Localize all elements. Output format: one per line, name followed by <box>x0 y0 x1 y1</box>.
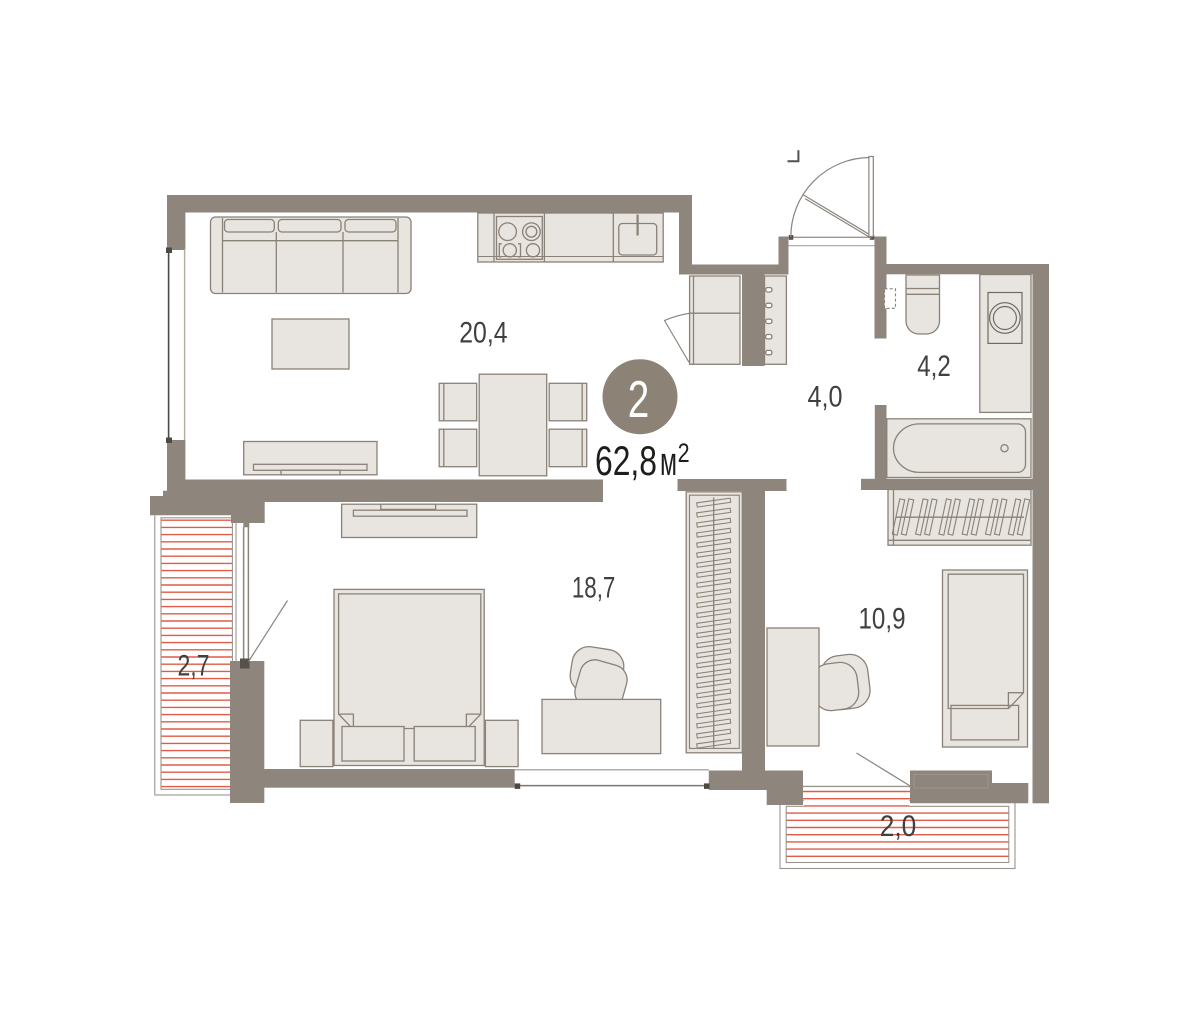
svg-text:2: 2 <box>628 370 650 428</box>
svg-text:20,4: 20,4 <box>459 317 507 350</box>
svg-text:2,7: 2,7 <box>178 650 210 683</box>
svg-text:4,2: 4,2 <box>917 350 951 383</box>
svg-text:м: м <box>660 440 677 484</box>
svg-text:62,8: 62,8 <box>595 437 657 484</box>
svg-text:10,9: 10,9 <box>859 603 906 636</box>
svg-text:2: 2 <box>678 438 690 468</box>
svg-text:4,0: 4,0 <box>808 380 843 413</box>
svg-text:18,7: 18,7 <box>572 571 616 604</box>
svg-text:2,0: 2,0 <box>880 810 917 843</box>
